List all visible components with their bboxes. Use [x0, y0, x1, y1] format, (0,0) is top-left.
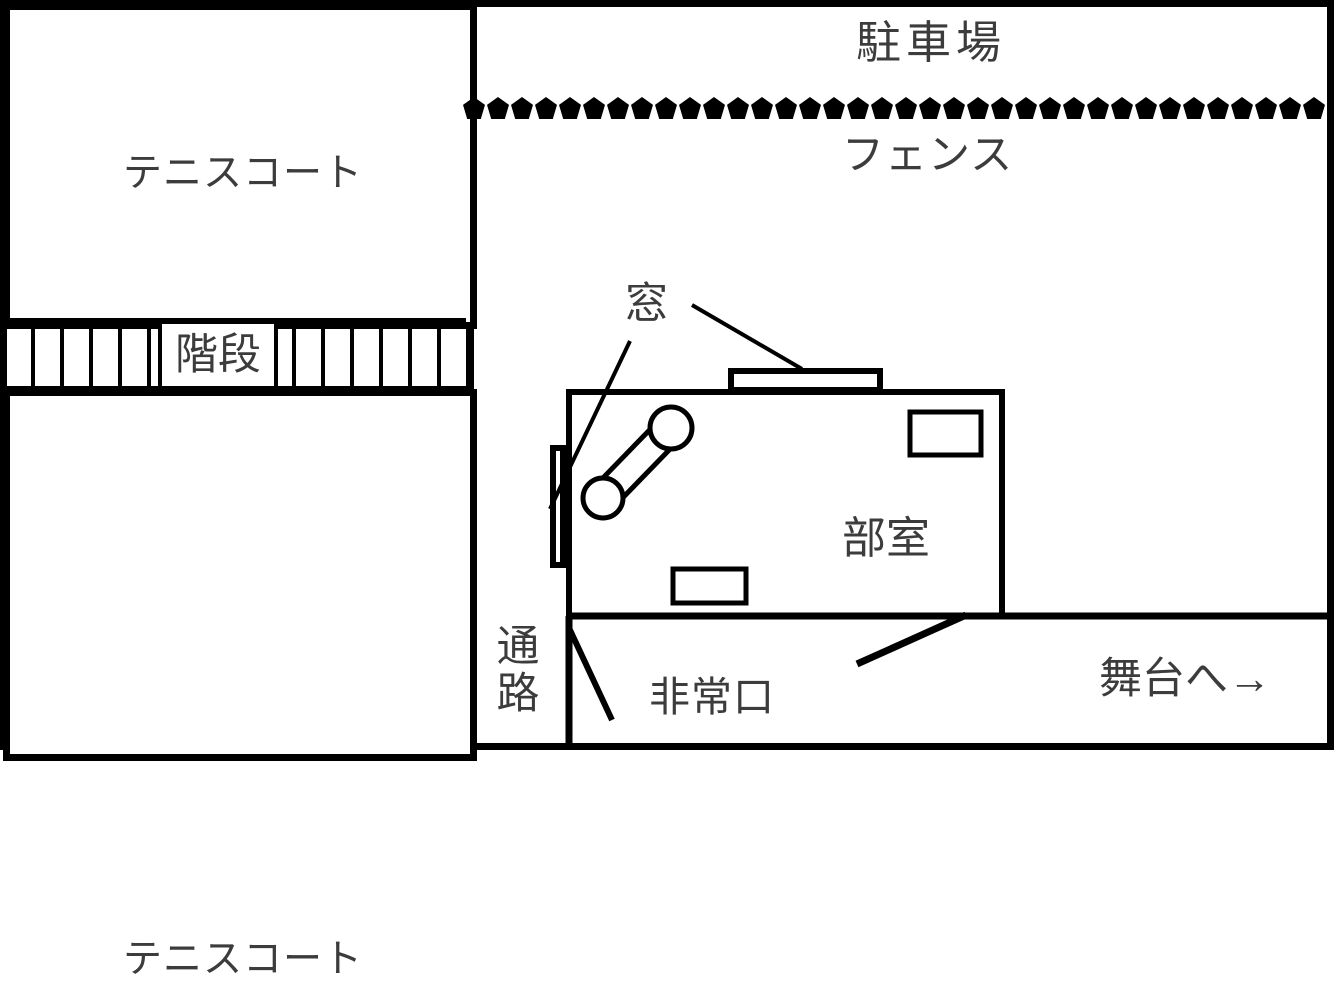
campus-map-diagram: { "diagram": { "parking_label": "駐車場", "…	[0, 0, 1334, 750]
club-room-label: 部室	[842, 517, 930, 561]
emergency-exit-door-line	[570, 630, 612, 720]
parking-label: 駐車場	[856, 21, 1006, 66]
window-label: 窓	[625, 283, 668, 326]
stage-door-line	[857, 615, 966, 664]
club-room-top-window	[731, 371, 880, 390]
floorplan-drawing	[0, 0, 1334, 750]
club-room-left-window	[553, 448, 563, 565]
passage-label: 通路	[494, 624, 542, 719]
club-room-table-bottom	[673, 569, 746, 603]
club-room-table-right	[910, 412, 981, 455]
dumbbell-end-lower	[583, 478, 623, 518]
to-stage-label: 舞台へ→	[1099, 658, 1271, 701]
fence-label: フェンス	[842, 135, 1013, 177]
dumbbell-end-upper	[650, 407, 692, 449]
window-pointer-line-right	[692, 305, 802, 369]
tennis-court-bottom-label: テニスコート	[13, 940, 473, 979]
emergency-exit-label: 非常口	[649, 677, 775, 718]
